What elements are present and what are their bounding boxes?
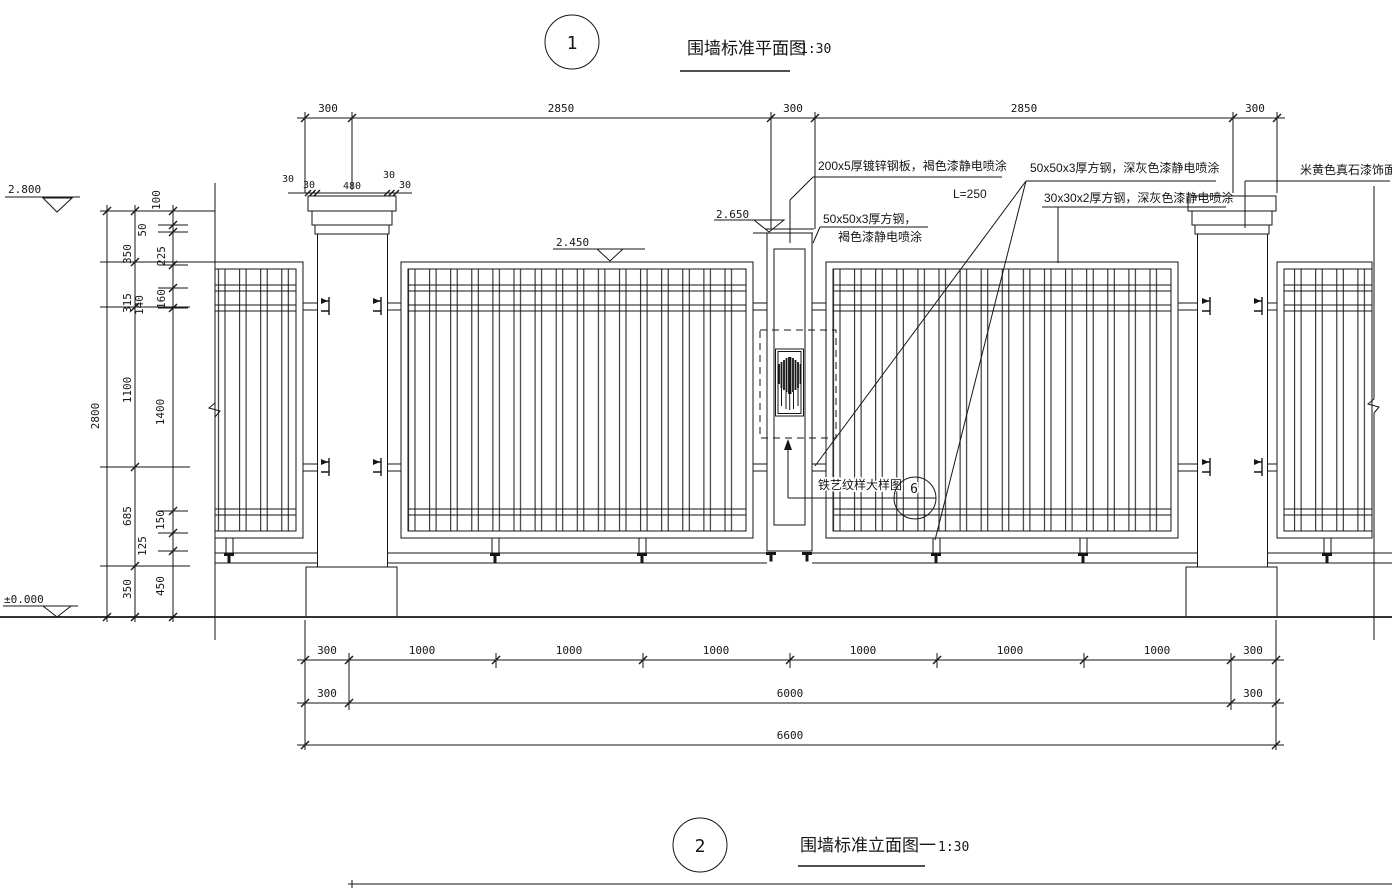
dim-label: 300 [1245, 102, 1265, 115]
dim-label: 225 [155, 246, 168, 266]
dim-label: 2850 [548, 102, 575, 115]
drawing-number-1: 1 [567, 33, 578, 54]
dim-row-cap: 30 30 480 30 30 [282, 170, 412, 196]
annotation-tube30-gray: 30x30x2厚方钢，深灰色漆静电喷涂 [1044, 190, 1233, 205]
dim-label: 300 [317, 687, 337, 700]
annotation-tube50-gray: 50x50x3厚方钢，深灰色漆静电喷涂 [1030, 160, 1219, 175]
dim-label: 160 [155, 289, 168, 309]
dim-label: 300 [1243, 687, 1263, 700]
annotation-plate-length: L=250 [953, 187, 987, 201]
elevation-marker-2800: 2.800 [5, 183, 80, 212]
elevation-marker-0000: ±0.000 [3, 593, 78, 617]
dim-label: 125 [136, 536, 149, 556]
drawing-number-2: 2 [695, 836, 706, 857]
dim-label: 350 [121, 579, 134, 599]
drawing-title-1: 围墙标准平面图 [687, 39, 806, 58]
dim-label-total-width: 6600 [777, 729, 804, 742]
dim-label: 1000 [703, 644, 730, 657]
dim-label: 30 [383, 170, 395, 181]
dim-label: 300 [783, 102, 803, 115]
title-block-1: 1 围墙标准平面图 1:30 [545, 15, 831, 71]
elevation-marker-2450: 2.450 [553, 236, 645, 261]
base-wall [215, 553, 1392, 617]
elevation-value: ±0.000 [4, 593, 44, 606]
dim-label-total-height: 2800 [89, 403, 102, 430]
annotation-tube50-brown-line2: 褐色漆静电喷涂 [838, 229, 922, 244]
annotation-stone-finish: 米黄色真石漆饰面 [1300, 163, 1392, 177]
elevation-value: 2.800 [8, 183, 41, 196]
dim-label: 480 [343, 181, 361, 192]
dim-label: 300 [317, 644, 337, 657]
dim-label: 50 [136, 223, 149, 236]
elevation-value: 2.650 [716, 208, 749, 221]
fence-panel-right-partial [1277, 262, 1372, 538]
dim-label: 1000 [1144, 644, 1171, 657]
dim-label: 1400 [154, 399, 167, 426]
fence-panel-left-partial [215, 262, 303, 538]
dim-label: 2850 [1011, 102, 1038, 115]
dim-label: 6000 [777, 687, 804, 700]
dim-chains-left: 2800 350 315 1100 685 350 100 50 225 160… [89, 190, 215, 622]
dim-label: 1000 [850, 644, 877, 657]
detail-bubble-number: 6 [910, 482, 918, 497]
dim-label: 450 [154, 576, 167, 596]
drawing-sheet: 1 围墙标准平面图 1:30 [0, 0, 1392, 888]
panel-support-legs [224, 538, 1332, 563]
dim-label: 150 [154, 510, 167, 530]
dim-label: 30 [303, 180, 315, 191]
dim-label: 100 [150, 190, 163, 210]
callout-label: 铁艺纹样大样图 [818, 477, 902, 492]
dim-label: 1000 [997, 644, 1024, 657]
annotation-steel-plate: 200x5厚镀锌钢板，褐色漆静电喷涂 [818, 158, 1007, 173]
elevation-drawing: 1 围墙标准平面图 1:30 [0, 0, 1392, 888]
drawing-title-2: 围墙标准立面图一 [800, 836, 936, 855]
drawing-scale-2: 1:30 [938, 840, 969, 855]
drawing-scale-1: 1:30 [800, 42, 831, 57]
dim-label: 685 [121, 506, 134, 526]
dim-rows-bottom: 300 1000 1000 1000 1000 1000 1000 300 30… [297, 620, 1284, 750]
fence-panel-2 [826, 262, 1178, 538]
iron-art-pattern [779, 357, 801, 410]
dim-label: 30 [399, 180, 411, 191]
pillar-right-pedestal [1186, 567, 1277, 617]
title-block-2: 2 围墙标准立面图一 1:30 [673, 818, 969, 872]
pillar-right [1188, 196, 1276, 567]
dim-label: 300 [318, 102, 338, 115]
fence-panel-1 [401, 262, 753, 538]
annotation-tube50-brown-line1: 50x50x3厚方钢， [823, 211, 916, 226]
dim-label: 30 [282, 174, 294, 185]
dim-label: 1100 [121, 377, 134, 404]
dim-label: 140 [133, 295, 146, 315]
pillar-left [308, 196, 396, 567]
pillar-left-cap [308, 196, 396, 211]
gate-post [765, 229, 814, 562]
dim-label: 350 [121, 244, 134, 264]
next-drawing-edge [348, 880, 1392, 888]
dim-label: 1000 [556, 644, 583, 657]
arrow-up-icon [784, 439, 792, 450]
dim-label: 300 [1243, 644, 1263, 657]
pillar-left-pedestal [306, 567, 397, 617]
dim-label: 1000 [409, 644, 436, 657]
elevation-value: 2.450 [556, 236, 589, 249]
